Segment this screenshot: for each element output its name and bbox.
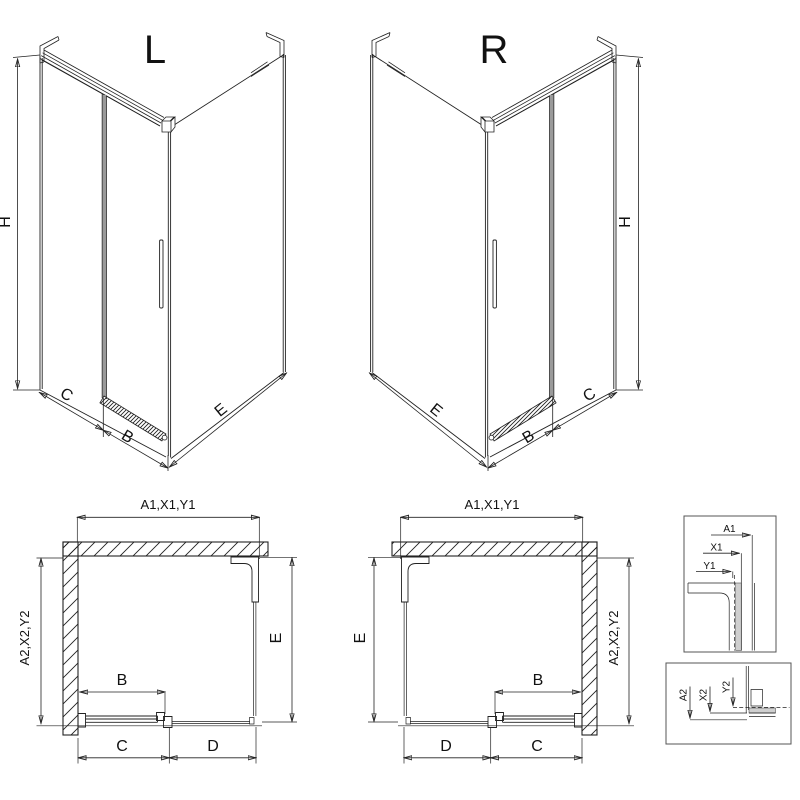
detail-a1-border <box>684 516 776 652</box>
iso-left-dim-C-label: C <box>57 385 76 406</box>
iso-left-door-handle <box>160 240 163 308</box>
plan-left-corner-profile <box>231 557 259 602</box>
iso-right-corner-post <box>481 117 494 132</box>
detail-a1-label-X1: X1 <box>710 543 723 554</box>
iso-left-corner-post <box>162 117 175 132</box>
plan-left-dim-A2-label: A2,X2,Y2 <box>17 611 32 666</box>
iso-left-title: L <box>144 28 166 72</box>
iso-left-dim-E-line <box>170 373 287 467</box>
plan-right-view: A1,X1,Y1 A2,X2,Y2 B D C E <box>352 497 634 764</box>
plan-right-dim-D-label: D <box>440 738 452 755</box>
iso-left-roller <box>162 435 167 440</box>
iso-left-view: L H C B E <box>0 28 287 471</box>
plan-left-wall-side <box>63 542 78 735</box>
plan-left-side-glass <box>254 602 256 716</box>
detail-a2-box: A2 X2 Y2 <box>666 663 791 744</box>
plan-left-dim-D-label: D <box>207 738 219 755</box>
detail-a2-border <box>666 663 791 744</box>
iso-left-dim-B-label: B <box>118 427 136 447</box>
iso-right-door-handle <box>493 240 496 308</box>
plan-right-dim-E-label: E <box>352 633 369 644</box>
iso-left-dim-E-label: E <box>212 401 231 421</box>
iso-right-dim-E-line <box>370 373 487 467</box>
iso-left-dim-H-label: H <box>0 216 14 228</box>
iso-right-dim-C-label: C <box>580 385 599 406</box>
plan-left-dim-A1-label: A1,X1,Y1 <box>141 497 196 512</box>
plan-right-dim-A2-label: A2,X2,Y2 <box>606 611 621 666</box>
plan-right-wall-side <box>582 542 597 735</box>
plan-left-door-assembly <box>78 713 172 728</box>
plan-right-door-assembly <box>488 713 582 728</box>
plan-left-dim-C-label: C <box>116 738 128 755</box>
iso-right-title: R <box>480 28 509 72</box>
detail-a2-label-Y2: Y2 <box>722 680 733 693</box>
plan-right-wall-top <box>392 542 597 556</box>
iso-right-dim-E-label: E <box>426 401 445 421</box>
plan-left-wall-top <box>63 542 268 556</box>
iso-right-dim-B-label: B <box>520 427 538 447</box>
iso-right-roller <box>489 435 494 440</box>
detail-a1-profile-strip <box>736 583 742 651</box>
plan-right-fixed-panel <box>406 718 488 725</box>
drawing-sheet: L H C B E R H C B E <box>0 0 800 800</box>
detail-a1-label-A1: A1 <box>723 524 736 535</box>
plan-right-dim-C-label: C <box>531 738 543 755</box>
plan-right-side-glass <box>404 602 406 716</box>
plan-left-fixed-panel <box>172 718 254 725</box>
plan-left-dim-B-label: B <box>117 672 128 689</box>
iso-left-dim-C-line <box>40 393 104 431</box>
detail-a2-label-A2: A2 <box>679 688 690 701</box>
iso-right-dim-H-label: H <box>617 216 634 228</box>
plan-right-corner-profile <box>402 557 430 602</box>
iso-right-view: R H C B E <box>370 28 644 471</box>
detail-a1-label-Y1: Y1 <box>703 561 716 572</box>
plan-left-dim-E-label: E <box>268 633 285 644</box>
plan-right-dim-A1-label: A1,X1,Y1 <box>465 497 520 512</box>
plan-left-view: A1,X1,Y1 A2,X2,Y2 B C D E <box>17 497 297 764</box>
detail-a1-box: A1 X1 Y1 <box>684 516 776 652</box>
technical-drawing-sheet: L H C B E R H C B E <box>0 0 800 800</box>
detail-a2-profile-strip <box>749 708 776 713</box>
detail-a2-label-X2: X2 <box>699 688 710 701</box>
plan-right-dim-B-label: B <box>533 672 544 689</box>
